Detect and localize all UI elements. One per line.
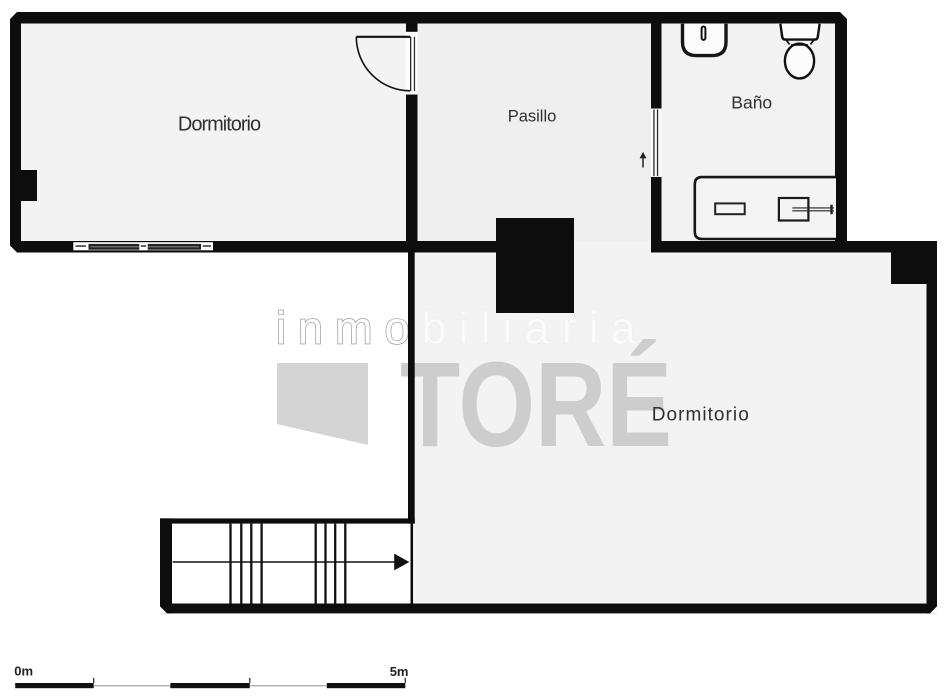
svg-text:Pasillo: Pasillo [508,107,557,125]
svg-text:TORÉ: TORÉ [400,337,672,472]
svg-text:5m: 5m [390,664,409,679]
svg-text:Baño: Baño [731,92,772,112]
svg-text:Dormitorio: Dormitorio [652,405,750,426]
svg-text:0m: 0m [14,664,33,679]
svg-text:Dormitorio: Dormitorio [178,114,261,136]
